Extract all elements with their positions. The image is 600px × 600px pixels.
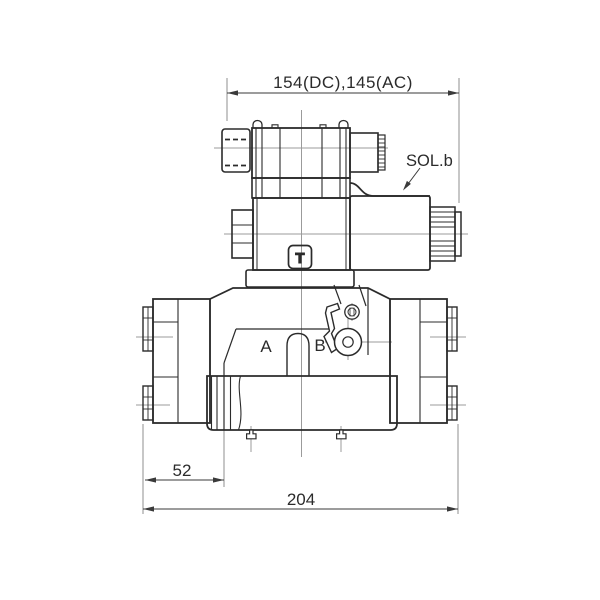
dim-204-arrow-right	[447, 506, 458, 511]
push-pin-ribs	[378, 139, 385, 167]
port-b-label: B	[314, 336, 325, 355]
lever-pivot-boss	[335, 329, 362, 356]
subplate-break-line	[239, 376, 241, 430]
solenoid-neck: T	[232, 196, 461, 287]
right-block-outline	[390, 299, 447, 423]
left-port-block	[143, 299, 210, 423]
coil-top-tab-left	[272, 125, 278, 128]
top-dim-arrow-right	[448, 90, 459, 95]
dimension-top-label: 154(DC),145(AC)	[273, 73, 413, 92]
dimension-52: 52	[145, 461, 224, 483]
sol-b-callout: SOL.b	[403, 152, 453, 191]
solenoid-coil-assembly	[222, 121, 430, 199]
locating-pin-left	[247, 430, 256, 439]
push-pin-ribbed-end	[378, 135, 385, 170]
override-set-screw	[345, 305, 359, 319]
dim-52-arrow-right	[213, 477, 224, 482]
manual-override-mechanism	[324, 304, 362, 356]
solenoid-bracket-curve	[350, 183, 430, 196]
dimension-204: 204	[143, 490, 458, 512]
main-valve-body	[210, 285, 390, 430]
left-block-outline	[153, 299, 210, 423]
solenoid-base-plate	[246, 270, 354, 287]
top-dim-arrow-left	[227, 90, 238, 95]
solenoid-b-housing	[350, 196, 430, 270]
body-left-slant	[224, 329, 236, 363]
solenoid-valve-drawing: T	[0, 0, 600, 600]
port-a-label: A	[260, 337, 272, 356]
dimension-top: 154(DC),145(AC)	[227, 73, 459, 96]
sol-b-label: SOL.b	[406, 152, 453, 170]
brand-t-logo: T	[295, 250, 304, 267]
dim-204-label: 204	[287, 490, 315, 509]
dim-52-label: 52	[173, 461, 192, 480]
drawing-canvas: T	[0, 0, 600, 600]
port-labels: A B	[260, 336, 325, 356]
coil-top-tab-right	[320, 125, 326, 128]
locating-pin-right	[337, 430, 346, 439]
center-port-boss	[287, 334, 309, 377]
dim-204-arrow-left	[143, 506, 154, 511]
push-pin-housing	[350, 133, 378, 172]
coil-top-bolt-right	[339, 121, 348, 129]
subplate-serrations	[212, 376, 231, 430]
dim-52-arrow-left	[145, 477, 156, 482]
coil-top-bolt-left	[253, 121, 262, 129]
right-port-block	[390, 299, 457, 423]
